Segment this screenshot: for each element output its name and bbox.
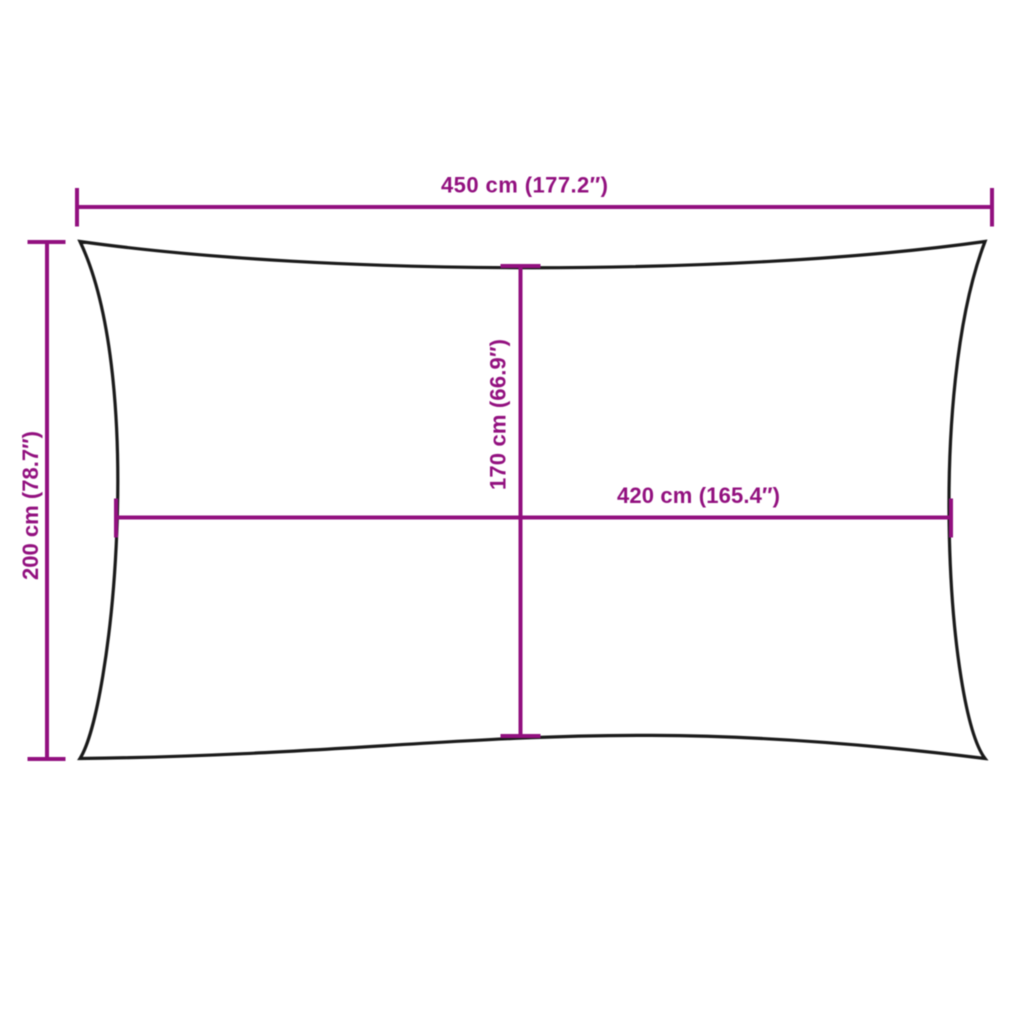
svg-text:200 cm (78.7″): 200 cm (78.7″)	[18, 431, 43, 580]
svg-text:450 cm (177.2″): 450 cm (177.2″)	[441, 173, 608, 198]
svg-text:170 cm (66.9″): 170 cm (66.9″)	[486, 339, 511, 490]
svg-text:420 cm (165.4″): 420 cm (165.4″)	[617, 483, 780, 508]
